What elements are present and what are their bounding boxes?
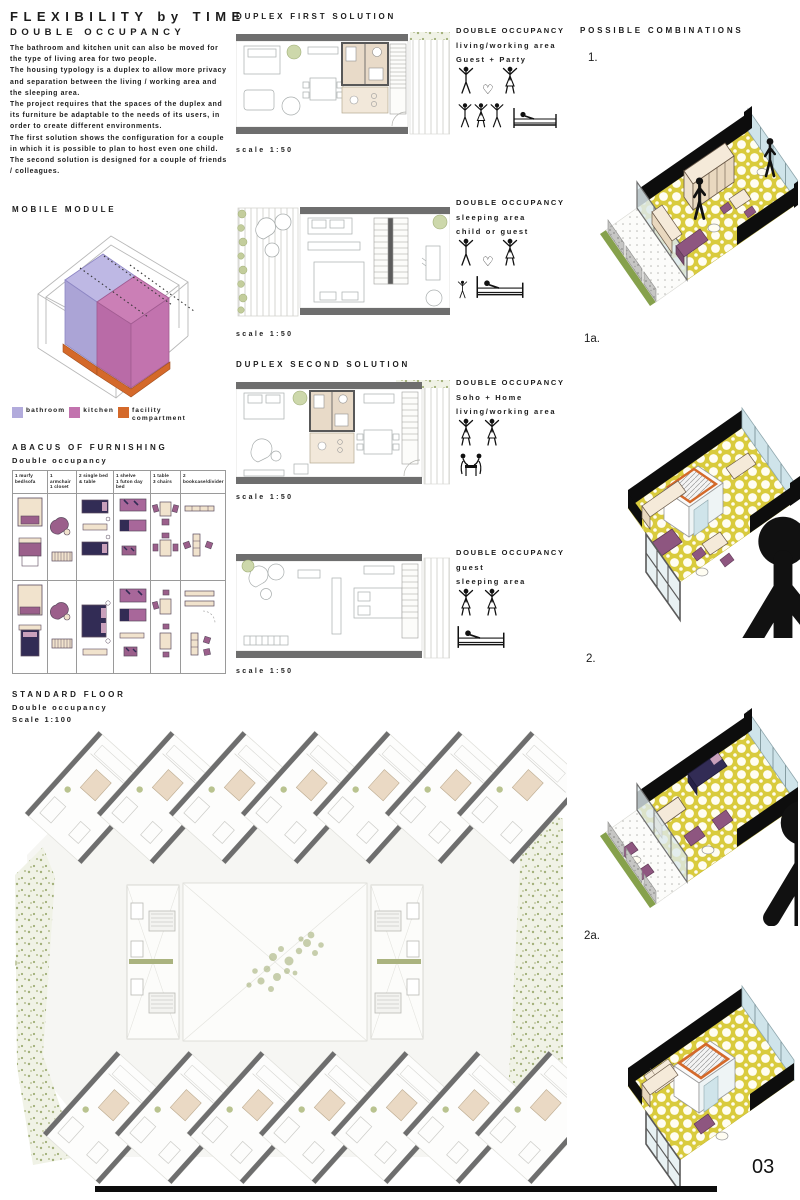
west-wing	[127, 885, 179, 1039]
bathroom-color-chip	[12, 407, 23, 418]
abacus-cell	[77, 494, 114, 581]
occupancy-3-icons-row1	[456, 418, 502, 448]
axon-view-1	[592, 60, 798, 328]
occupancy-4-icons-row1	[456, 588, 502, 618]
abacus-header-row: 1 murfy bed/sofa 1 armchair1 closet 2 si…	[13, 471, 226, 494]
duplex-second-upper-plan	[236, 550, 450, 664]
person-in-bed-icon	[456, 624, 506, 650]
legend-label: facility compartment	[132, 407, 190, 422]
duplex-second-upper-scale: scale 1:50	[236, 668, 293, 675]
abacus-cell	[77, 581, 114, 674]
plan3-module	[310, 391, 354, 431]
people-at-table-icon	[456, 452, 486, 478]
intro-paragraph: The housing typology is a duplex to allo…	[10, 65, 230, 99]
occupancy-2-icons-row2	[456, 274, 525, 300]
party-figure-icon	[488, 102, 506, 130]
standard-floor-line2: Double occupancy	[12, 703, 107, 712]
dancing-figure-icon	[456, 66, 476, 96]
heart-icon: ♡	[482, 83, 494, 96]
occupancy-3-icons-row2	[456, 452, 486, 478]
legend-label: kitchen	[83, 407, 114, 415]
duplex-second-lower-plan	[236, 378, 450, 490]
figure-dress-icon	[482, 588, 502, 618]
abacus-cell	[48, 581, 77, 674]
child-figure-icon	[456, 280, 469, 300]
combination-label-1a: 1a.	[584, 333, 600, 345]
duplex-first-upper-scale: scale 1:50	[236, 331, 293, 338]
abacus-col-header: 1 armchair1 closet	[48, 471, 77, 494]
standard-floor-plan	[15, 725, 567, 1193]
abacus-col-header: 1 table3 chairs	[151, 471, 181, 494]
section-ground-bar	[95, 1186, 717, 1192]
figure-icon	[456, 238, 476, 268]
legend-item-facility: facility compartment	[118, 407, 190, 422]
duplex-second-lower-scale: scale 1:50	[236, 494, 293, 501]
legend-label: bathroom	[26, 407, 65, 415]
person-silhouette	[748, 517, 800, 638]
occupancy-label-3: DOUBLE OCCUPANCY Soho + Home living/work…	[456, 376, 565, 420]
abacus-cell	[114, 581, 151, 674]
intro-paragraph: The bathroom and kitchen unit can also b…	[10, 43, 230, 65]
page-number: 03	[752, 1156, 774, 1179]
facility-color-chip	[118, 407, 129, 418]
occupancy-1-icons-row2	[456, 102, 558, 130]
mobile-module-title: MOBILE MODULE	[12, 205, 116, 214]
figure-dress-icon	[456, 588, 476, 618]
figure-dress-icon	[482, 418, 502, 448]
abacus-col-header: 2 single bed& table	[77, 471, 114, 494]
abacus-table: 1 murfy bed/sofa 1 armchair1 closet 2 si…	[12, 470, 226, 674]
abacus-cell	[13, 494, 48, 581]
occupancy-label-2: DOUBLE OCCUPANCY sleeping area child or …	[456, 196, 565, 240]
page-title: FLEXIBILITY by TIME	[10, 9, 246, 24]
mobile-module-diagram	[8, 216, 213, 404]
intro-paragraph: The first solution shows the configurati…	[10, 133, 230, 155]
person-in-bed-icon	[475, 274, 525, 300]
abacus-cell	[114, 494, 151, 581]
abacus-cell	[48, 494, 77, 581]
duplex-first-lower-plan	[236, 30, 450, 140]
occupancy-label-4: DOUBLE OCCUPANCY guest sleeping area	[456, 546, 565, 590]
page-subtitle: DOUBLE OCCUPANCY	[10, 27, 185, 38]
dancing-figure-dress-icon	[500, 66, 520, 96]
legend-item-kitchen: kitchen	[69, 407, 114, 418]
plan1-module	[342, 43, 388, 85]
abacus-col-header: 1 shelve1 futon day bed	[114, 471, 151, 494]
abacus-cell	[181, 494, 226, 581]
axon-view-2	[592, 664, 798, 926]
occupancy-4-icons-row2	[456, 624, 506, 650]
abacus-col-header: 2 bookcase/divider	[181, 471, 226, 494]
kitchen-color-chip	[69, 407, 80, 418]
figure-dress-icon	[456, 418, 476, 448]
abacus-cell	[13, 581, 48, 674]
east-wing	[371, 885, 423, 1039]
abacus-col-header: 1 murfy bed/sofa	[13, 471, 48, 494]
abacus-cell	[151, 581, 181, 674]
abacus-cell	[181, 581, 226, 674]
standard-floor-line3: Scale 1:100	[12, 715, 73, 724]
figure-dress-icon	[500, 238, 520, 268]
duplex-first-upper-plan	[236, 198, 450, 324]
person-in-bed-icon	[512, 106, 558, 130]
duplex-first-title: DUPLEX FIRST SOLUTION	[236, 12, 396, 21]
combination-label-2a: 2a.	[584, 930, 600, 942]
duplex-second-title: DUPLEX SECOND SOLUTION	[236, 360, 410, 369]
occupancy-2-icons-row1: ♡	[456, 238, 520, 268]
mobile-module-legend: bathroom kitchen facility compartment	[12, 407, 227, 422]
intro-paragraph: The second solution is designed for a co…	[10, 155, 230, 177]
abacus-subtitle: Double occupancy	[12, 456, 107, 465]
combinations-title: POSSIBLE COMBINATIONS	[580, 26, 744, 35]
duplex-first-lower-scale: scale 1:50	[236, 147, 293, 154]
abacus-row-2	[13, 581, 226, 674]
occupancy-label-1: DOUBLE OCCUPANCY living/working area Gue…	[456, 24, 565, 68]
abacus-cell	[151, 494, 181, 581]
intro-paragraph: The project requires that the spaces of …	[10, 99, 230, 133]
heart-icon: ♡	[482, 255, 494, 268]
abacus-row-1	[13, 494, 226, 581]
standard-floor-title: STANDARD FLOOR	[12, 690, 126, 699]
presentation-board: FLEXIBILITY by TIME DOUBLE OCCUPANCY The…	[0, 0, 800, 1200]
intro-text: The bathroom and kitchen unit can also b…	[10, 43, 230, 177]
abacus-title: ABACUS OF FURNISHING	[12, 443, 168, 452]
legend-item-bathroom: bathroom	[12, 407, 65, 418]
axon-view-1a	[590, 348, 800, 638]
occupancy-1-icons-row1: ♡	[456, 66, 520, 96]
